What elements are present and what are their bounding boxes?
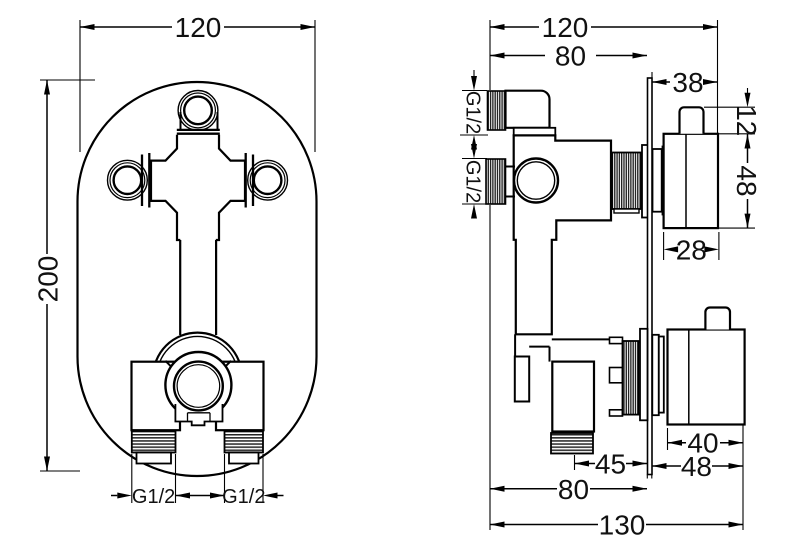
svg-text:45: 45 — [595, 449, 626, 480]
svg-text:120: 120 — [175, 12, 222, 43]
svg-text:G1/2: G1/2 — [462, 91, 484, 134]
svg-text:12: 12 — [731, 105, 762, 136]
svg-text:200: 200 — [33, 256, 64, 303]
svg-text:48: 48 — [731, 165, 762, 196]
svg-text:G1/2: G1/2 — [462, 160, 484, 203]
svg-text:G1/2: G1/2 — [132, 486, 175, 508]
svg-text:38: 38 — [672, 67, 703, 98]
svg-text:80: 80 — [558, 474, 589, 505]
svg-text:G1/2: G1/2 — [222, 486, 265, 508]
svg-text:48: 48 — [681, 451, 712, 482]
svg-text:28: 28 — [676, 234, 707, 265]
svg-text:130: 130 — [599, 510, 646, 541]
svg-text:120: 120 — [542, 12, 589, 43]
svg-text:80: 80 — [555, 41, 586, 72]
